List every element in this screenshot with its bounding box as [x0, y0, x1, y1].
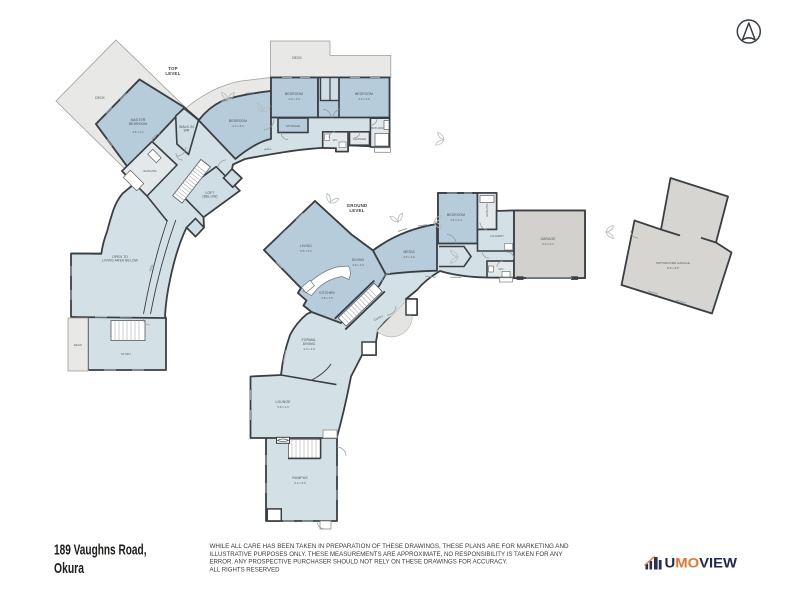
svg-text:LOUNGE: LOUNGE: [276, 400, 292, 404]
svg-text:ALL RIGHTS RESERVED: ALL RIGHTS RESERVED: [210, 566, 280, 573]
svg-text:WC: WC: [499, 267, 505, 271]
svg-text:Okura: Okura: [54, 561, 85, 577]
svg-text:ERROR. ANY PROSPECTIVE PURCHAS: ERROR. ANY PROSPECTIVE PURCHASER SHOULD …: [210, 559, 508, 566]
svg-text:MOTORHOME GARAGE: MOTORHOME GARAGE: [656, 261, 690, 265]
svg-text:4.0 x 3.6: 4.0 x 3.6: [288, 97, 300, 101]
svg-text:BEDROOM: BEDROOM: [447, 213, 465, 217]
svg-text:RUMPUS: RUMPUS: [292, 476, 308, 480]
svg-text:BEDROOM: BEDROOM: [355, 92, 373, 96]
svg-text:BEDROOM: BEDROOM: [285, 92, 303, 96]
svg-text:4.5 x 6.1: 4.5 x 6.1: [132, 130, 144, 134]
svg-text:WHILE ALL CARE HAS BEEN TAKEN: WHILE ALL CARE HAS BEEN TAKEN IN PREPARA…: [210, 543, 569, 550]
svg-text:LIVING: LIVING: [300, 244, 312, 248]
svg-text:5.8 x 4.6: 5.8 x 4.6: [277, 405, 289, 409]
svg-text:LAUNDRY: LAUNDRY: [490, 234, 504, 238]
svg-text:DECK: DECK: [292, 56, 302, 60]
svg-text:ILLUSTRATIVE PURPOSES ONLY. TH: ILLUSTRATIVE PURPOSES ONLY. THESE MEASUR…: [210, 551, 564, 558]
svg-text:GROUNDLEVEL: GROUNDLEVEL: [347, 203, 368, 213]
svg-text:STUDY: STUDY: [121, 352, 131, 356]
svg-text:MEDIA: MEDIA: [403, 250, 415, 254]
svg-text:6.0 x 6.4: 6.0 x 6.4: [542, 242, 554, 246]
svg-text:TOPLEVEL: TOPLEVEL: [165, 66, 180, 76]
svg-text:KITCHEN: KITCHEN: [319, 291, 335, 295]
svg-text:4.5 x 4.6: 4.5 x 4.6: [403, 255, 415, 259]
svg-text:4.0 x 4.6: 4.0 x 4.6: [303, 347, 315, 351]
svg-text:4.2 x 5.3: 4.2 x 5.3: [232, 124, 244, 128]
svg-text:DECK: DECK: [74, 343, 82, 347]
svg-text:MASTERBEDROOM: MASTERBEDROOM: [129, 118, 147, 126]
svg-text:STORAGE: STORAGE: [286, 124, 301, 128]
svg-text:BEDROOM: BEDROOM: [229, 119, 247, 123]
svg-text:3.6 x 4.4: 3.6 x 4.4: [450, 218, 462, 222]
svg-text:4.5 x 4.0: 4.5 x 4.0: [352, 263, 364, 267]
svg-text:4.0 x 3.6: 4.0 x 3.6: [358, 97, 370, 101]
svg-text:189 Vaughns Road,: 189 Vaughns Road,: [54, 543, 147, 559]
svg-text:FORMALDINING: FORMALDINING: [302, 338, 317, 346]
svg-text:UMOVIEW: UMOVIEW: [665, 555, 738, 571]
svg-text:ENSUITE: ENSUITE: [485, 203, 489, 216]
svg-text:6.5 x 5.2: 6.5 x 5.2: [300, 249, 312, 253]
svg-text:ENSUITE: ENSUITE: [143, 169, 156, 173]
svg-text:6.2 x 5.6: 6.2 x 5.6: [294, 481, 306, 485]
svg-text:GARAGE: GARAGE: [540, 237, 556, 241]
svg-text:DINING: DINING: [352, 258, 365, 262]
svg-text:DECK: DECK: [95, 96, 105, 100]
svg-text:8.8 x 8.8: 8.8 x 8.8: [667, 266, 679, 270]
svg-text:4.8 x 4.5: 4.8 x 4.5: [321, 296, 333, 300]
svg-text:WC: WC: [333, 138, 339, 142]
